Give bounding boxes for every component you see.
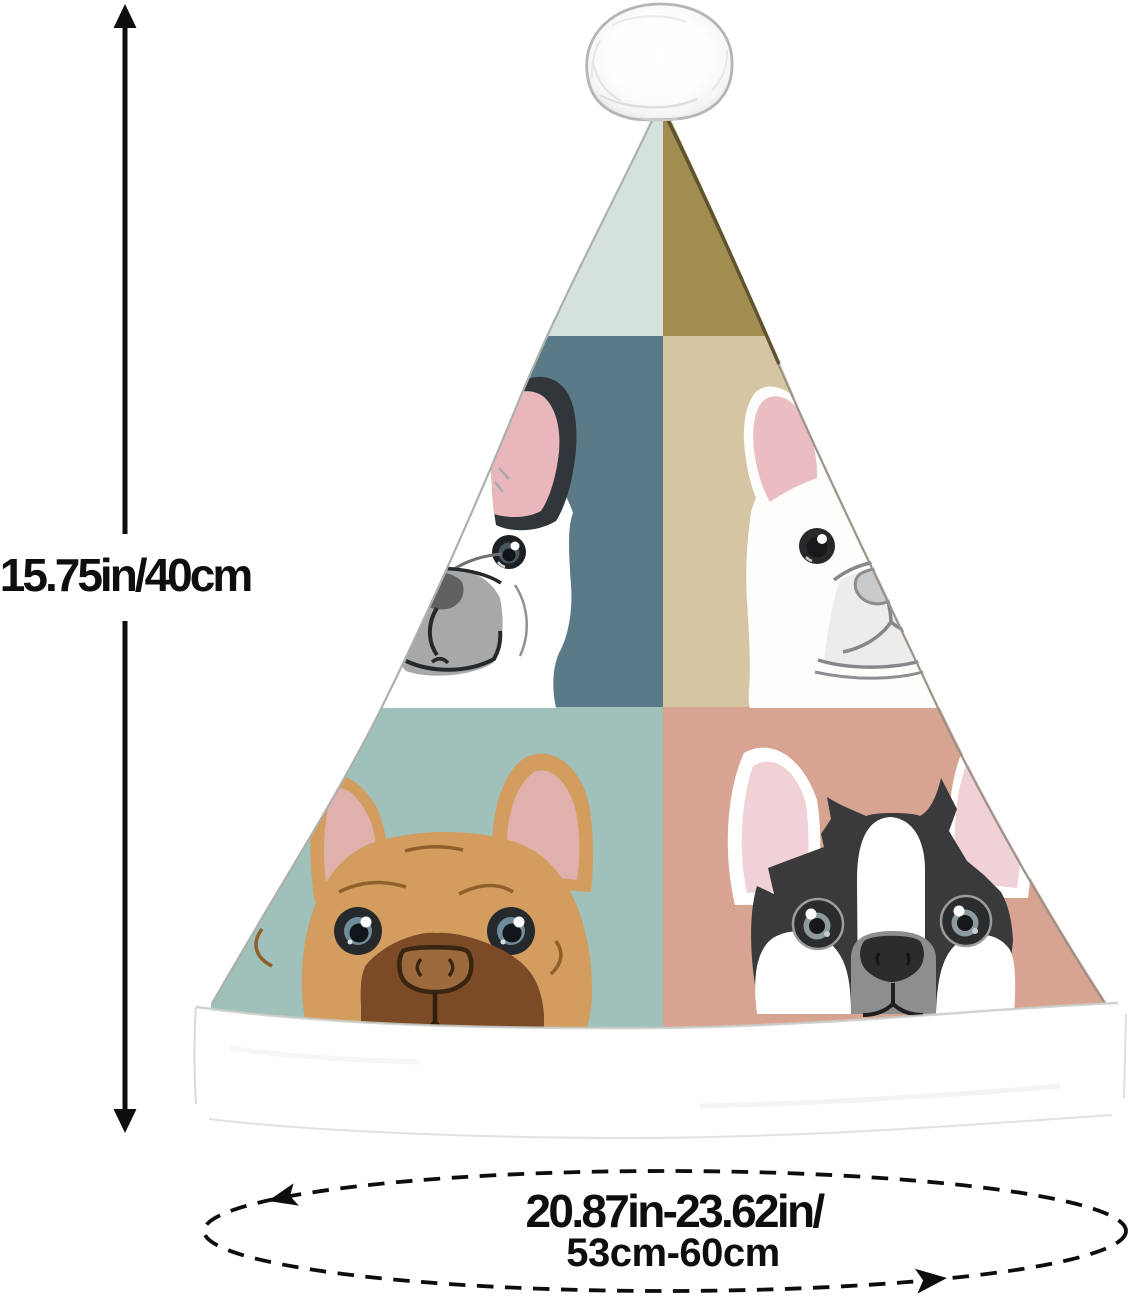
svg-text:15.75in/40cm: 15.75in/40cm xyxy=(0,549,251,601)
svg-text:53cm-60cm: 53cm-60cm xyxy=(566,1231,779,1275)
svg-text:20.87in-23.62in/: 20.87in-23.62in/ xyxy=(526,1185,826,1237)
